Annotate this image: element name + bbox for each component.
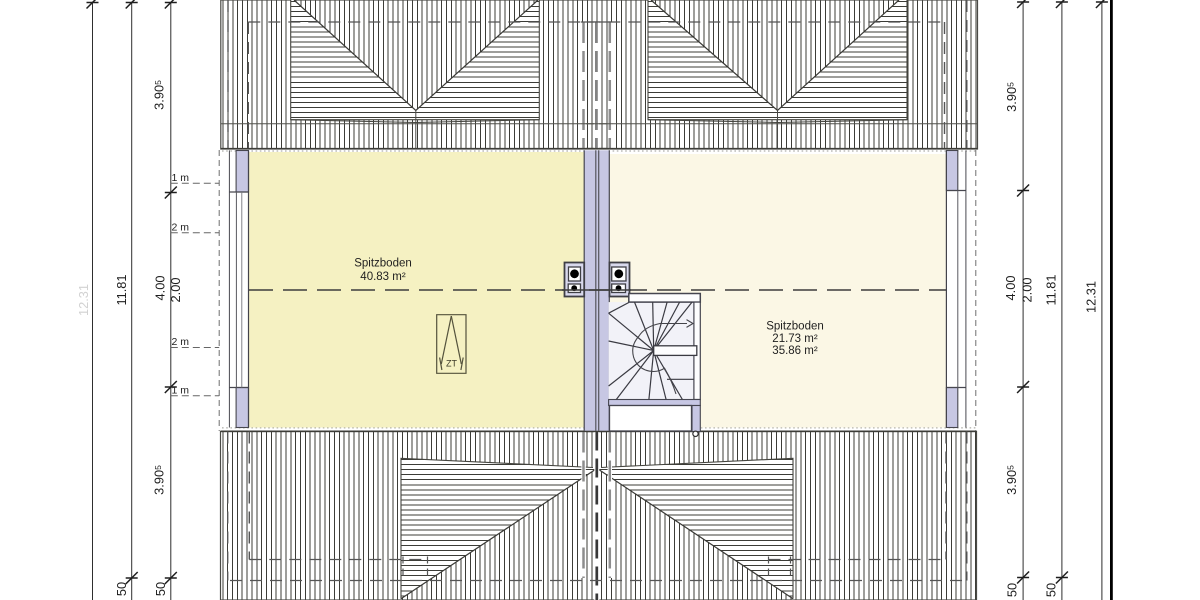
svg-text:Spitzboden: Spitzboden <box>354 258 412 270</box>
svg-text:11.81: 11.81 <box>114 274 129 305</box>
svg-text:3.905: 3.905 <box>152 80 167 110</box>
svg-text:50: 50 <box>1044 583 1059 597</box>
svg-text:11.81: 11.81 <box>1044 274 1059 305</box>
svg-text:2.00: 2.00 <box>1020 278 1035 303</box>
svg-text:50: 50 <box>1005 583 1020 597</box>
svg-text:50: 50 <box>153 582 168 596</box>
svg-text:21.73 m²: 21.73 m² <box>772 333 818 345</box>
svg-text:35.86 m²: 35.86 m² <box>772 345 818 357</box>
svg-text:4.00: 4.00 <box>153 276 168 301</box>
svg-text:4.00: 4.00 <box>1003 276 1018 301</box>
svg-text:3.905: 3.905 <box>1004 465 1019 495</box>
svg-text:Spitzboden: Spitzboden <box>766 321 824 333</box>
svg-text:3.905: 3.905 <box>152 465 167 495</box>
svg-text:1 m: 1 m <box>172 385 190 397</box>
svg-text:2 m: 2 m <box>172 336 190 348</box>
svg-text:50: 50 <box>114 582 129 596</box>
svg-text:3.905: 3.905 <box>1004 82 1019 112</box>
svg-text:2 m: 2 m <box>172 222 190 234</box>
svg-text:12.31: 12.31 <box>1084 281 1099 313</box>
svg-text:2.00: 2.00 <box>168 278 183 303</box>
svg-text:40.83 m²: 40.83 m² <box>360 271 406 283</box>
svg-text:1 m: 1 m <box>172 172 190 184</box>
svg-text:ZT: ZT <box>446 359 457 369</box>
svg-text:12.31: 12.31 <box>76 284 91 316</box>
